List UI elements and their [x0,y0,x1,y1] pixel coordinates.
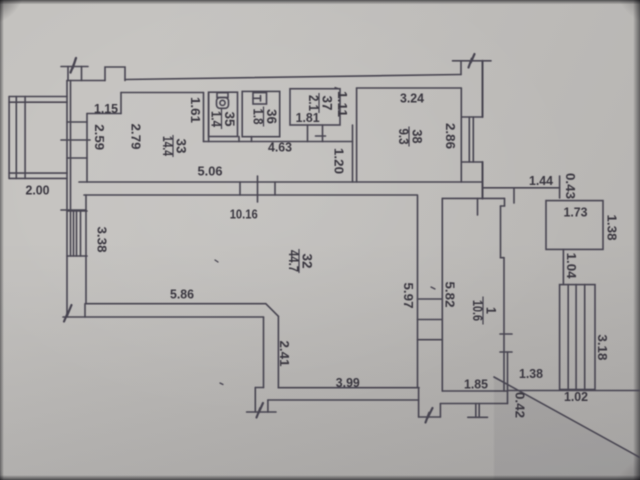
svg-text:1.4: 1.4 [209,111,225,127]
svg-text:9.3: 9.3 [396,129,412,145]
svg-text:1.85: 1.85 [464,377,488,392]
svg-text:5.86: 5.86 [170,286,194,301]
svg-text:3.18: 3.18 [595,334,610,360]
svg-text:5.97: 5.97 [401,283,416,309]
svg-text:2.41: 2.41 [277,341,292,367]
svg-text:1.8: 1.8 [251,109,267,125]
svg-text:2.00: 2.00 [26,183,50,198]
svg-text:10.16: 10.16 [230,207,258,222]
svg-text:2.86: 2.86 [443,123,458,149]
svg-text:2.1: 2.1 [306,95,322,111]
svg-text:1.38: 1.38 [519,366,543,381]
svg-text:3.99: 3.99 [336,375,360,390]
svg-text:1.11: 1.11 [335,91,350,117]
svg-text:1.38: 1.38 [605,215,620,241]
svg-text:0.43: 0.43 [563,173,578,199]
svg-text:0.42: 0.42 [513,392,528,418]
svg-text:14.4: 14.4 [160,136,176,156]
svg-text:5.82: 5.82 [443,282,458,308]
svg-text:1.20: 1.20 [332,148,347,174]
svg-text:2.59: 2.59 [92,124,107,150]
svg-text:10.6: 10.6 [470,300,486,321]
svg-text:1.15: 1.15 [94,101,118,116]
svg-text:1.02: 1.02 [564,389,588,404]
svg-text:1.61: 1.61 [188,97,203,123]
svg-text:44.7: 44.7 [286,250,302,272]
svg-text:3.24: 3.24 [400,91,425,106]
svg-text:3.38: 3.38 [95,227,110,253]
svg-text:1.73: 1.73 [564,205,588,220]
svg-text:5.06: 5.06 [198,164,223,179]
svg-text:2.79: 2.79 [129,124,144,150]
svg-text:1.04: 1.04 [564,253,579,280]
svg-text:1.44: 1.44 [529,173,554,188]
svg-text:1.81: 1.81 [296,110,320,125]
svg-text:4.63: 4.63 [268,140,292,155]
